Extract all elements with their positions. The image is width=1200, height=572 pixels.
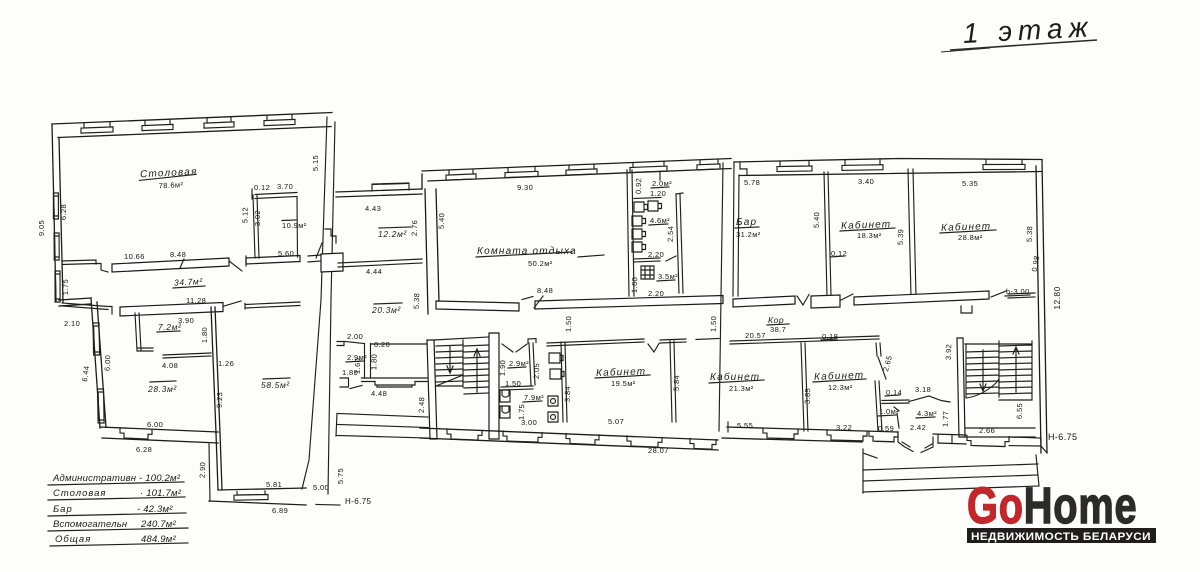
svg-text:5.38: 5.38 xyxy=(1025,226,1035,243)
svg-text:4.43: 4.43 xyxy=(365,204,381,213)
svg-text:9.23: 9.23 xyxy=(215,392,225,409)
svg-text:5.78: 5.78 xyxy=(744,178,760,187)
svg-text:1.50: 1.50 xyxy=(709,316,719,333)
svg-text:2.00: 2.00 xyxy=(347,332,363,341)
svg-text:1.80: 1.80 xyxy=(369,354,379,371)
svg-text:5.40: 5.40 xyxy=(437,213,447,230)
svg-text:1.26: 1.26 xyxy=(218,359,234,368)
svg-text:2.20: 2.20 xyxy=(648,250,664,259)
svg-text:28.3м²: 28.3м² xyxy=(147,384,177,394)
svg-text:1.75: 1.75 xyxy=(61,279,70,295)
svg-text:78.6м²: 78.6м² xyxy=(158,180,183,190)
svg-text:1.50: 1.50 xyxy=(505,379,521,388)
svg-text:28.8м²: 28.8м² xyxy=(958,233,983,242)
svg-text:20.57: 20.57 xyxy=(745,331,766,340)
svg-text:Комната отдыха: Комната отдыха xyxy=(477,246,577,257)
svg-text:1.80: 1.80 xyxy=(342,368,358,377)
svg-text:2.42: 2.42 xyxy=(910,423,926,432)
svg-text:Бар: Бар xyxy=(53,504,73,515)
svg-text:38.7: 38.7 xyxy=(770,325,786,334)
svg-text:4.44: 4.44 xyxy=(366,267,382,276)
svg-text:21.3м²: 21.3м² xyxy=(729,384,754,393)
svg-text:Кор: Кор xyxy=(768,315,784,325)
svg-text:5.38: 5.38 xyxy=(412,293,422,310)
svg-text:10.66: 10.66 xyxy=(124,252,145,261)
svg-text:GoHome: GoHome xyxy=(967,477,1137,534)
svg-text:5.07: 5.07 xyxy=(608,417,624,426)
svg-text:6.89: 6.89 xyxy=(272,506,288,515)
svg-text:12.3м²: 12.3м² xyxy=(828,383,853,392)
svg-text:3.40: 3.40 xyxy=(858,177,874,186)
svg-text:0.20: 0.20 xyxy=(374,340,390,349)
svg-text:1.60: 1.60 xyxy=(630,277,640,294)
svg-text:4.48: 4.48 xyxy=(371,389,387,398)
svg-text:12.80: 12.80 xyxy=(1052,286,1062,309)
svg-text:50.2м²: 50.2м² xyxy=(528,259,553,268)
svg-text:3.84: 3.84 xyxy=(563,386,573,403)
svg-text:3.70: 3.70 xyxy=(277,182,293,191)
svg-text:1.50: 1.50 xyxy=(564,316,574,333)
svg-text:2.90: 2.90 xyxy=(198,462,208,479)
svg-text:Вспомогательн: Вспомогательн xyxy=(53,519,128,530)
svg-text:19.5м²: 19.5м² xyxy=(611,379,636,388)
svg-text:12.2м²: 12.2м² xyxy=(378,229,407,239)
svg-text:Общая: Общая xyxy=(55,534,91,545)
svg-text:8.48: 8.48 xyxy=(170,250,186,259)
svg-text:2.76: 2.76 xyxy=(410,220,420,237)
svg-text:1.77: 1.77 xyxy=(941,411,951,428)
svg-text:2.48: 2.48 xyxy=(417,397,427,414)
svg-text:Столовая: Столовая xyxy=(53,488,107,499)
svg-text:5.39: 5.39 xyxy=(896,229,906,246)
svg-text:0.59: 0.59 xyxy=(878,424,894,433)
svg-text:5.35: 5.35 xyxy=(962,179,978,188)
svg-text:3.85: 3.85 xyxy=(803,388,813,405)
svg-text:5.81: 5.81 xyxy=(266,480,282,489)
svg-text:5.12: 5.12 xyxy=(241,207,250,223)
svg-text:2.54: 2.54 xyxy=(666,226,676,243)
svg-text:20.3м²: 20.3м² xyxy=(371,305,401,315)
svg-text:5.75: 5.75 xyxy=(336,468,345,484)
svg-text:1.80: 1.80 xyxy=(200,327,209,343)
svg-text:2.10: 2.10 xyxy=(64,319,80,328)
svg-text:31.2м²: 31.2м² xyxy=(736,230,761,239)
svg-text:28.07: 28.07 xyxy=(648,446,669,455)
svg-text:НЕДВИЖИМОСТЬ БЕЛАРУСИ: НЕДВИЖИМОСТЬ БЕЛАРУСИ xyxy=(971,531,1151,543)
svg-text:5.84: 5.84 xyxy=(672,375,682,392)
svg-text:18.3м²: 18.3м² xyxy=(857,231,882,240)
svg-text:1.90: 1.90 xyxy=(498,360,508,377)
svg-text:6.28: 6.28 xyxy=(59,204,68,220)
svg-text:8.48: 8.48 xyxy=(537,286,553,295)
svg-text:3.92: 3.92 xyxy=(944,344,954,361)
svg-text:3.02: 3.02 xyxy=(253,210,262,226)
svg-text:6.28: 6.28 xyxy=(136,445,152,454)
svg-text:Н-6.75: Н-6.75 xyxy=(345,497,372,506)
svg-text:3.18: 3.18 xyxy=(915,385,931,394)
svg-text:Бар: Бар xyxy=(736,217,757,228)
svg-text:5.55: 5.55 xyxy=(737,421,753,430)
svg-text:11.28: 11.28 xyxy=(186,296,206,305)
svg-text:3.00: 3.00 xyxy=(521,418,537,427)
svg-text:6.55: 6.55 xyxy=(1015,403,1025,420)
svg-text:9.05: 9.05 xyxy=(37,220,46,236)
svg-text:Н-6.75: Н-6.75 xyxy=(1048,432,1077,442)
svg-text:0.92: 0.92 xyxy=(634,178,644,195)
svg-text:2.66: 2.66 xyxy=(979,426,995,435)
svg-text:5.15: 5.15 xyxy=(311,155,320,171)
svg-text:5.00: 5.00 xyxy=(313,483,329,492)
svg-text:0.12: 0.12 xyxy=(254,183,270,192)
svg-text:58.5м²: 58.5м² xyxy=(261,380,290,390)
svg-text:5.40: 5.40 xyxy=(812,212,822,229)
svg-text:6.00: 6.00 xyxy=(147,420,163,429)
svg-text:10.9м²: 10.9м² xyxy=(282,221,307,230)
svg-text:2.05: 2.05 xyxy=(532,363,542,380)
svg-text:9.30: 9.30 xyxy=(517,183,533,192)
svg-text:5.60: 5.60 xyxy=(278,249,294,258)
svg-text:3.22: 3.22 xyxy=(836,423,852,432)
svg-text:4.08: 4.08 xyxy=(162,361,178,370)
svg-text:2.20: 2.20 xyxy=(648,289,664,298)
svg-text:6.00: 6.00 xyxy=(103,355,113,372)
svg-text:1.20: 1.20 xyxy=(650,189,666,198)
